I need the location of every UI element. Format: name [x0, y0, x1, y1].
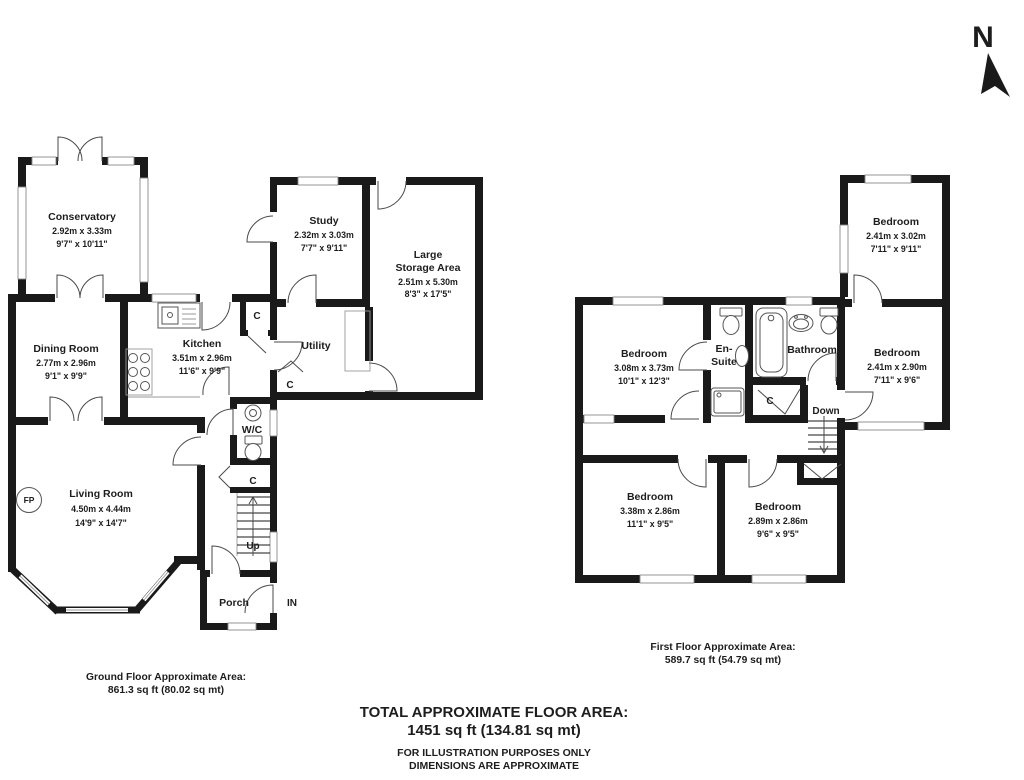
floorplan-canvas: Conservatory 2.92m x 3.33m 9'7" x 10'11"… — [0, 0, 1024, 780]
ground-area-value: 861.3 sq ft (80.02 sq mt) — [108, 685, 224, 696]
disclaimer-line-2: DIMENSIONS ARE APPROXIMATE — [409, 760, 579, 772]
ensuite-basin-icon — [736, 346, 749, 367]
study-metric: 2.32m x 3.03m — [294, 230, 354, 240]
bedroom-tr-label: Bedroom — [873, 216, 919, 228]
dining-room-imperial: 9'1" x 9'9" — [45, 371, 87, 381]
bathroom-label: Bathroom — [787, 344, 837, 356]
storage-label-2: Storage Area — [396, 262, 461, 274]
bedroom-bl-metric: 3.38m x 2.86m — [620, 506, 680, 516]
stairs-down-label: Down — [812, 406, 839, 417]
living-room-metric: 4.50m x 4.44m — [71, 504, 131, 514]
dining-room-metric: 2.77m x 2.96m — [36, 358, 96, 368]
storage-label-1: Large — [414, 249, 443, 261]
ground-labels: Conservatory 2.92m x 3.33m 9'7" x 10'11"… — [24, 211, 461, 609]
bedroom-left-imperial: 10'1" x 12'3" — [618, 376, 670, 386]
ground-area-label: Ground Floor Approximate Area: — [86, 672, 246, 683]
bedroom-left-label: Bedroom — [621, 348, 667, 360]
bedroom-tr-metric: 2.41m x 3.02m — [866, 231, 926, 241]
kitchen-sink-icon — [158, 303, 200, 328]
first-floor-plan: Bedroom 2.41m x 3.02m 7'11" x 9'11" Bedr… — [575, 175, 950, 583]
living-room-imperial: 14'9" x 14'7" — [75, 518, 127, 528]
bathroom-basin-icon — [789, 315, 813, 332]
kitchen-hob-icon — [126, 349, 152, 395]
dining-room-label: Dining Room — [33, 343, 98, 355]
cupboard-label-first: C — [766, 396, 773, 407]
ensuite-label-2: Suite — [711, 356, 737, 368]
bedroom-bl-label: Bedroom — [627, 491, 673, 503]
total-area-value: 1451 sq ft (134.81 sq mt) — [407, 722, 580, 739]
ensuite-shower-icon — [711, 388, 744, 416]
wc-basin-icon — [245, 405, 261, 421]
ensuite-toilet-icon — [720, 308, 742, 335]
entrance-in-label: IN — [287, 598, 297, 609]
study-label: Study — [309, 215, 338, 227]
area-summaries: Ground Floor Approximate Area: 861.3 sq … — [86, 642, 796, 772]
stairs-up-label: Up — [246, 541, 259, 552]
bathroom-toilet-icon — [820, 308, 838, 334]
ensuite-label-1: En- — [716, 343, 733, 355]
bedroom-right-imperial: 7'11" x 9'6" — [874, 375, 920, 385]
bedroom-right-label: Bedroom — [874, 347, 920, 359]
first-area-value: 589.7 sq ft (54.79 sq mt) — [665, 655, 781, 666]
bedroom-bl-imperial: 11'1" x 9'5" — [627, 519, 673, 529]
floorplan-page: Conservatory 2.92m x 3.33m 9'7" x 10'11"… — [0, 0, 1024, 780]
cupboard-label-utility: C — [286, 380, 293, 391]
bedroom-br-label: Bedroom — [755, 501, 801, 513]
conservatory-label: Conservatory — [48, 211, 116, 223]
cupboard-label-kitchen: C — [253, 311, 260, 322]
wc-toilet-icon — [245, 436, 262, 461]
first-area-label: First Floor Approximate Area: — [650, 642, 795, 653]
total-area-label: TOTAL APPROXIMATE FLOOR AREA: — [360, 704, 629, 721]
ground-doors — [50, 137, 406, 613]
study-imperial: 7'7" x 9'11" — [301, 243, 347, 253]
kitchen-label: Kitchen — [183, 338, 222, 350]
disclaimer-line-1: FOR ILLUSTRATION PURPOSES ONLY — [397, 747, 591, 759]
living-room-label: Living Room — [69, 488, 133, 500]
bath-icon — [756, 308, 787, 377]
north-arrow-icon: N — [972, 21, 1010, 97]
storage-imperial: 8'3" x 17'5" — [405, 289, 452, 299]
kitchen-metric: 3.51m x 2.96m — [172, 353, 232, 363]
north-label: N — [972, 21, 994, 54]
bedroom-left-metric: 3.08m x 3.73m — [614, 363, 674, 373]
wc-label: W/C — [242, 424, 263, 436]
bedroom-br-imperial: 9'6" x 9'5" — [757, 529, 799, 539]
utility-label: Utility — [301, 340, 330, 352]
conservatory-metric: 2.92m x 3.33m — [52, 226, 112, 236]
cupboard-label-stairs: C — [249, 476, 256, 487]
conservatory-imperial: 9'7" x 10'11" — [56, 239, 107, 249]
porch-label: Porch — [219, 597, 249, 609]
bedroom-tr-imperial: 7'11" x 9'11" — [871, 244, 922, 254]
ground-floor-plan: Conservatory 2.92m x 3.33m 9'7" x 10'11"… — [8, 137, 483, 630]
stairs-down — [808, 416, 840, 453]
kitchen-imperial: 11'6" x 9'9" — [179, 366, 225, 376]
bedroom-right-metric: 2.41m x 2.90m — [867, 362, 927, 372]
fireplace-label: FP — [24, 495, 35, 505]
storage-metric: 2.51m x 5.30m — [398, 277, 458, 287]
bedroom-br-metric: 2.89m x 2.86m — [748, 516, 808, 526]
